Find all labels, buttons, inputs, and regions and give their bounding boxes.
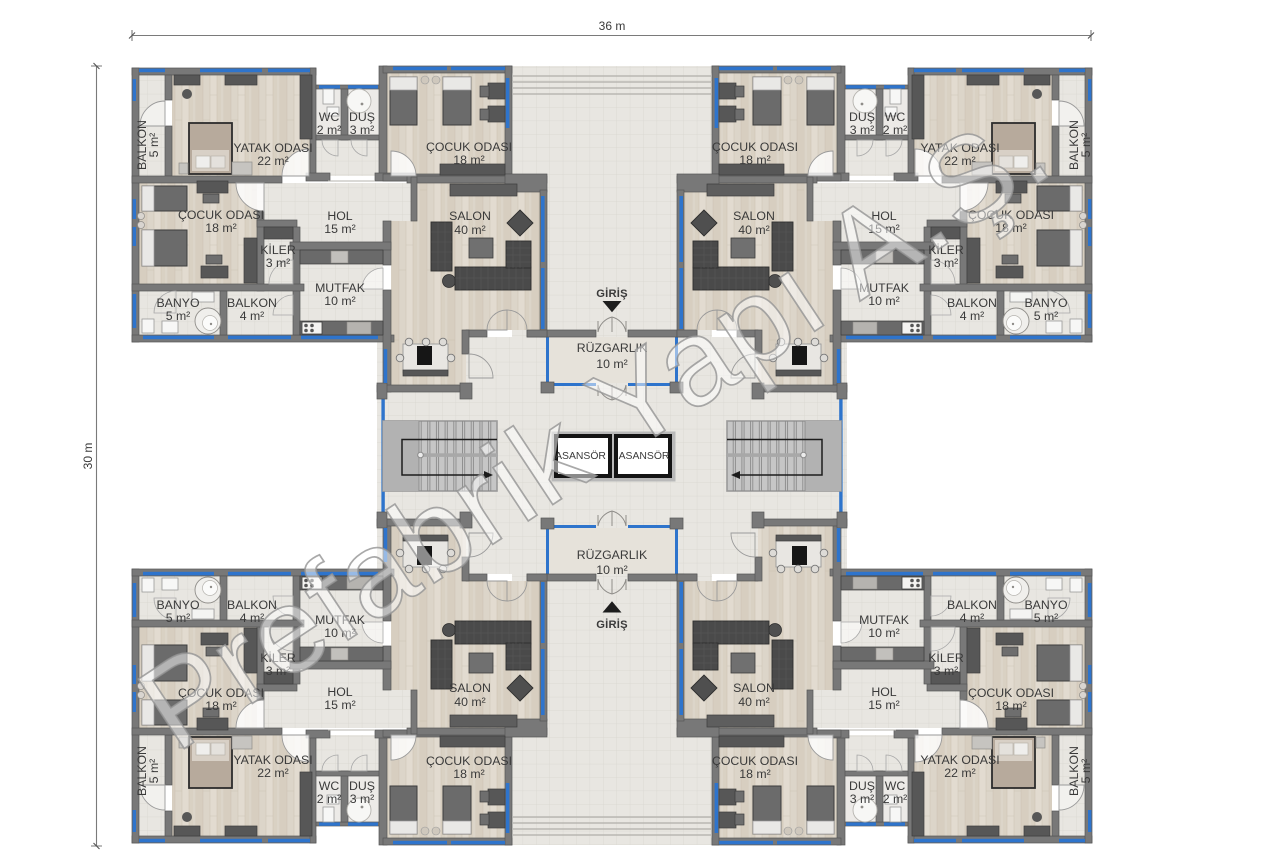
svg-text:BANYO: BANYO xyxy=(156,296,199,310)
svg-text:GİRİŞ: GİRİŞ xyxy=(596,287,628,300)
svg-text:15 m²: 15 m² xyxy=(324,222,355,236)
svg-text:BALKON: BALKON xyxy=(947,598,997,612)
svg-text:HOL: HOL xyxy=(327,685,352,699)
svg-text:HOL: HOL xyxy=(327,209,352,223)
svg-text:30 m: 30 m xyxy=(81,443,95,470)
svg-text:ÇOCUK ODASI: ÇOCUK ODASI xyxy=(968,686,1054,700)
svg-text:5 m²: 5 m² xyxy=(1034,309,1059,323)
svg-text:SALON: SALON xyxy=(449,209,491,223)
svg-text:5 m²: 5 m² xyxy=(147,133,161,158)
svg-text:36 m: 36 m xyxy=(599,19,626,33)
svg-text:WC: WC xyxy=(885,110,906,124)
svg-text:3 m²: 3 m² xyxy=(350,792,375,806)
svg-text:3 m²: 3 m² xyxy=(850,123,875,137)
svg-text:MUTFAK: MUTFAK xyxy=(315,281,366,295)
svg-text:BANYO: BANYO xyxy=(1024,296,1067,310)
svg-text:BALKON: BALKON xyxy=(227,296,277,310)
svg-text:18 m²: 18 m² xyxy=(453,767,484,781)
svg-text:3 m²: 3 m² xyxy=(850,792,875,806)
svg-text:BANYO: BANYO xyxy=(1024,598,1067,612)
svg-text:SALON: SALON xyxy=(449,681,491,695)
svg-text:22 m²: 22 m² xyxy=(257,766,288,780)
svg-text:YATAK ODASI: YATAK ODASI xyxy=(920,753,999,767)
svg-text:HOL: HOL xyxy=(871,685,896,699)
svg-text:5 m²: 5 m² xyxy=(1079,759,1093,784)
svg-text:5 m²: 5 m² xyxy=(1034,611,1059,625)
svg-text:ÇOCUK ODASI: ÇOCUK ODASI xyxy=(178,208,264,222)
svg-text:2 m²: 2 m² xyxy=(883,123,908,137)
svg-text:3 m²: 3 m² xyxy=(350,123,375,137)
svg-text:5 m²: 5 m² xyxy=(147,759,161,784)
svg-text:DUŞ: DUŞ xyxy=(849,779,875,793)
svg-text:KİLER: KİLER xyxy=(260,243,296,257)
svg-text:ÇOCUK ODASI: ÇOCUK ODASI xyxy=(712,140,798,154)
svg-text:2 m²: 2 m² xyxy=(317,123,342,137)
svg-text:ÇOCUK ODASI: ÇOCUK ODASI xyxy=(712,754,798,768)
svg-text:15 m²: 15 m² xyxy=(868,698,899,712)
svg-text:ÇOCUK ODASI: ÇOCUK ODASI xyxy=(426,140,512,154)
svg-text:GİRİŞ: GİRİŞ xyxy=(596,618,628,631)
svg-text:WC: WC xyxy=(319,110,340,124)
svg-text:SALON: SALON xyxy=(733,681,775,695)
svg-text:18 m²: 18 m² xyxy=(995,699,1026,713)
svg-text:SALON: SALON xyxy=(733,209,775,223)
svg-text:3 m²: 3 m² xyxy=(266,256,291,270)
svg-text:2 m²: 2 m² xyxy=(317,792,342,806)
svg-text:BALKON: BALKON xyxy=(947,296,997,310)
svg-text:RÜZGARLIK: RÜZGARLIK xyxy=(577,548,648,562)
svg-text:2 m²: 2 m² xyxy=(883,792,908,806)
svg-text:15 m²: 15 m² xyxy=(324,698,355,712)
svg-text:DUŞ: DUŞ xyxy=(849,110,875,124)
svg-text:40 m²: 40 m² xyxy=(454,695,485,709)
svg-text:KİLER: KİLER xyxy=(928,651,964,665)
svg-text:10 m²: 10 m² xyxy=(868,626,899,640)
svg-text:40 m²: 40 m² xyxy=(738,695,769,709)
svg-text:5 m²: 5 m² xyxy=(166,309,191,323)
svg-text:ÇOCUK ODASI: ÇOCUK ODASI xyxy=(426,754,512,768)
svg-text:18 m²: 18 m² xyxy=(739,153,770,167)
svg-text:18 m²: 18 m² xyxy=(453,153,484,167)
svg-text:18 m²: 18 m² xyxy=(739,767,770,781)
svg-text:4 m²: 4 m² xyxy=(960,611,985,625)
svg-text:4 m²: 4 m² xyxy=(240,309,265,323)
svg-text:YATAK ODASI: YATAK ODASI xyxy=(233,141,312,155)
svg-text:10 m²: 10 m² xyxy=(596,563,627,577)
svg-text:22 m²: 22 m² xyxy=(257,154,288,168)
svg-text:MUTFAK: MUTFAK xyxy=(859,613,910,627)
svg-text:5 m²: 5 m² xyxy=(1079,133,1093,158)
svg-text:WC: WC xyxy=(319,779,340,793)
svg-text:4 m²: 4 m² xyxy=(960,309,985,323)
svg-text:22 m²: 22 m² xyxy=(944,766,975,780)
svg-text:18 m²: 18 m² xyxy=(205,221,236,235)
svg-text:DUŞ: DUŞ xyxy=(349,779,375,793)
svg-text:40 m²: 40 m² xyxy=(454,223,485,237)
svg-text:YATAK ODASI: YATAK ODASI xyxy=(233,753,312,767)
svg-text:WC: WC xyxy=(885,779,906,793)
svg-text:3 m²: 3 m² xyxy=(934,664,959,678)
svg-text:DUŞ: DUŞ xyxy=(349,110,375,124)
svg-text:10 m²: 10 m² xyxy=(324,294,355,308)
